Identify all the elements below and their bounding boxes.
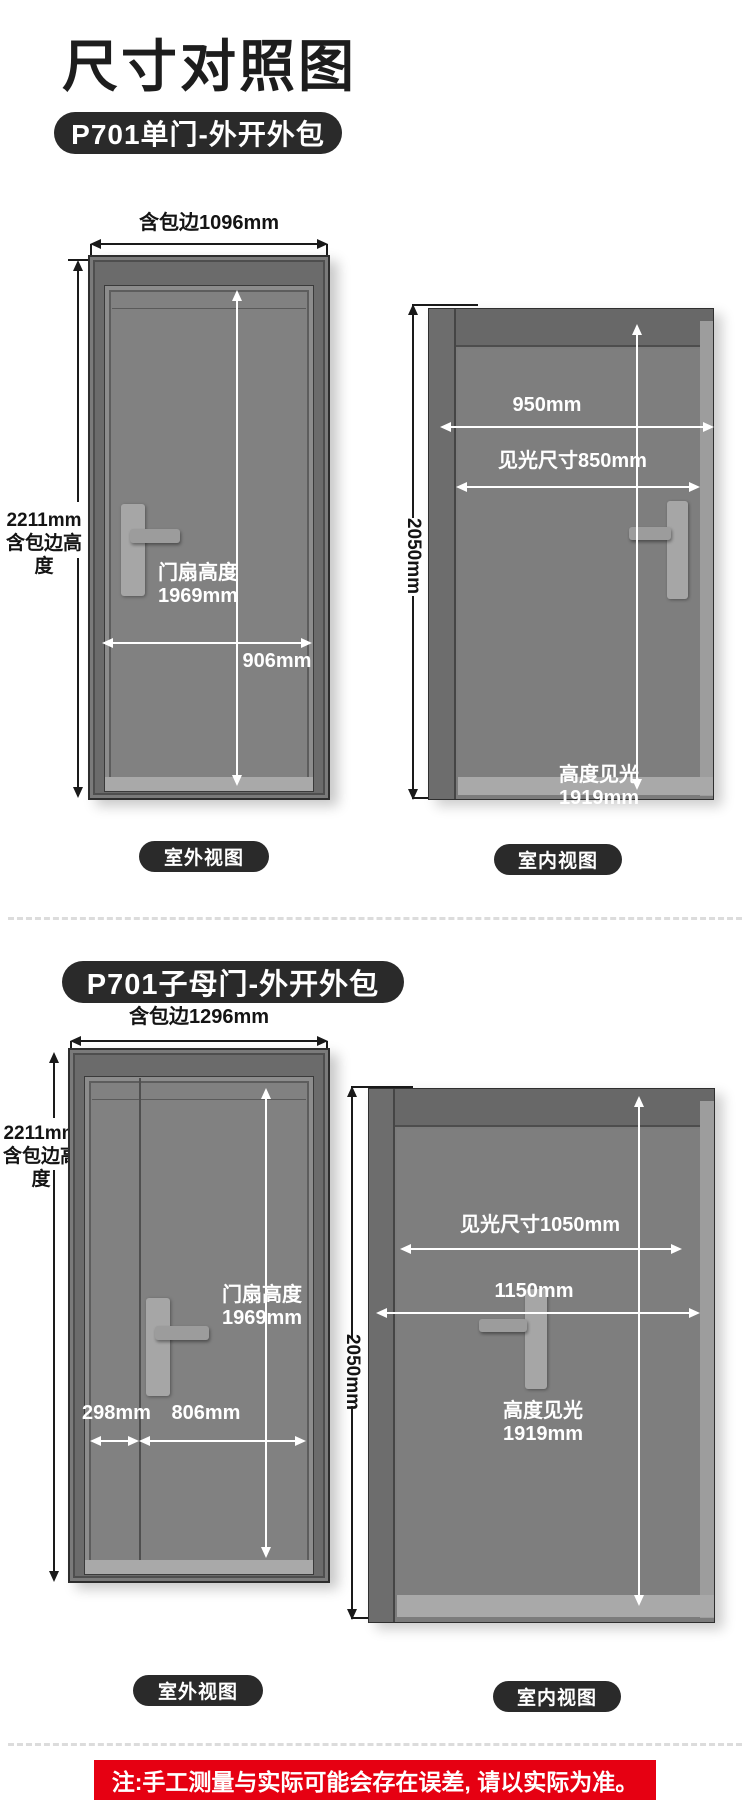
dim-outer-width-arrow: [378, 1312, 698, 1314]
door-handle-plate: [121, 504, 145, 596]
dim-value: 高度见光: [500, 1400, 586, 1423]
door-top-rail-line: [112, 308, 306, 309]
dim-overall-height-arrow-bottom: [53, 1170, 55, 1580]
page-title: 尺寸对照图: [62, 22, 357, 103]
dim-outer-height-arrow-bottom: [412, 596, 414, 798]
dim-child-leaf-width-label: 298mm: [82, 1402, 150, 1425]
dim-value: 1919mm: [556, 787, 642, 810]
dim-clear-height-label: 高度见光 1919mm: [556, 764, 642, 810]
dim-overall-height-arrow-bottom: [77, 558, 79, 796]
door-threshold: [105, 777, 313, 791]
dim-outer-height-label: 2050mm: [341, 1334, 363, 1410]
dim-clear-height-arrow: [638, 1098, 640, 1604]
dim-outer-height-arrow-top: [412, 306, 414, 518]
door-frame-head: [456, 309, 713, 347]
dim-mother-leaf-width-arrow: [141, 1440, 304, 1442]
interior-door-diagram-1: [428, 308, 714, 800]
door-handle-plate: [525, 1289, 547, 1389]
dim-outer-width-label: 950mm: [452, 394, 642, 417]
dim-overall-height-arrow-top: [53, 1054, 55, 1118]
dim-value: 门扇高度: [153, 562, 243, 585]
dim-leaf-width-label: 906mm: [242, 650, 312, 673]
door-frame-head: [395, 1089, 714, 1127]
door-handle-plate: [146, 1298, 170, 1396]
dim-leaf-width-arrow: [104, 642, 310, 644]
footer-divider: [8, 1743, 742, 1746]
exterior-door-diagram-1: [88, 255, 330, 800]
dim-value: 高度见光: [556, 764, 642, 787]
dim-outer-height-arrow-top: [351, 1088, 353, 1338]
section1-badge: P701单门-外开外包: [54, 112, 342, 154]
dim-leaf-height-label: 门扇高度 1969mm: [153, 562, 243, 608]
door-handle-lever: [130, 529, 180, 543]
door-top-rail-line: [92, 1099, 306, 1100]
dim-value: 1969mm: [216, 1307, 308, 1330]
dim-value: 含包边高度: [0, 532, 88, 578]
door-handle-plate: [667, 501, 688, 599]
door-frame-edge-strip: [700, 1101, 714, 1618]
dim-value: 2211mm: [0, 509, 88, 532]
dim-outer-width-arrow: [442, 426, 712, 428]
dim-mother-leaf-width-label: 806mm: [168, 1402, 244, 1425]
dim-clear-height-label: 高度见光 1919mm: [500, 1400, 586, 1446]
dim-overall-height-arrow-top: [77, 262, 79, 502]
measurement-note: 注:手工测量与实际可能会存在误差, 请以实际为准。: [94, 1760, 656, 1800]
view-caption-interior-1: 室内视图: [494, 844, 622, 875]
dim-top-width-label: 含包边1296mm: [68, 1006, 330, 1029]
dim-value: 1919mm: [500, 1423, 586, 1446]
dim-top-width-label: 含包边1096mm: [88, 212, 330, 235]
size-comparison-infographic: 尺寸对照图 P701单门-外开外包 含包边1096mm 2211mm 含包边高度…: [0, 0, 750, 1813]
interior-door-diagram-2: [368, 1088, 715, 1623]
dim-top-width-arrow: [72, 1040, 326, 1042]
dim-value: 门扇高度: [216, 1284, 308, 1307]
door-handle-lever: [155, 1326, 209, 1340]
dim-overall-height-label: 2211mm 含包边高度: [0, 509, 88, 578]
section2-badge: P701子母门-外开外包: [62, 961, 404, 1003]
door-frame-jamb: [429, 309, 456, 799]
dim-clear-height-arrow: [636, 326, 638, 788]
dim-child-leaf-width-arrow: [92, 1440, 137, 1442]
dim-outer-width-label: 1150mm: [394, 1280, 674, 1303]
section-divider: [8, 917, 742, 920]
door-frame-jamb: [369, 1089, 395, 1622]
view-caption-interior-2: 室内视图: [493, 1681, 621, 1712]
dim-clear-width-arrow: [458, 486, 698, 488]
dim-outer-height-label: 2050mm: [402, 518, 424, 594]
door-frame-edge-strip: [700, 321, 713, 796]
door-threshold: [85, 1560, 313, 1574]
dim-extension-tick: [412, 304, 478, 306]
dim-leaf-height-arrow: [236, 292, 238, 784]
dim-value: 1969mm: [153, 585, 243, 608]
dim-clear-width-label: 见光尺寸850mm: [460, 450, 685, 473]
view-caption-exterior-1: 室外视图: [139, 841, 269, 872]
dim-leaf-height-label: 门扇高度 1969mm: [216, 1284, 308, 1330]
door-threshold: [397, 1595, 714, 1617]
door-leaf: [397, 1129, 700, 1617]
child-leaf-divider: [139, 1078, 141, 1573]
door-handle-lever: [479, 1319, 527, 1332]
dim-top-width-arrow: [92, 243, 326, 245]
dim-outer-height-arrow-bottom: [351, 1406, 353, 1618]
view-caption-exterior-2: 室外视图: [133, 1675, 263, 1706]
